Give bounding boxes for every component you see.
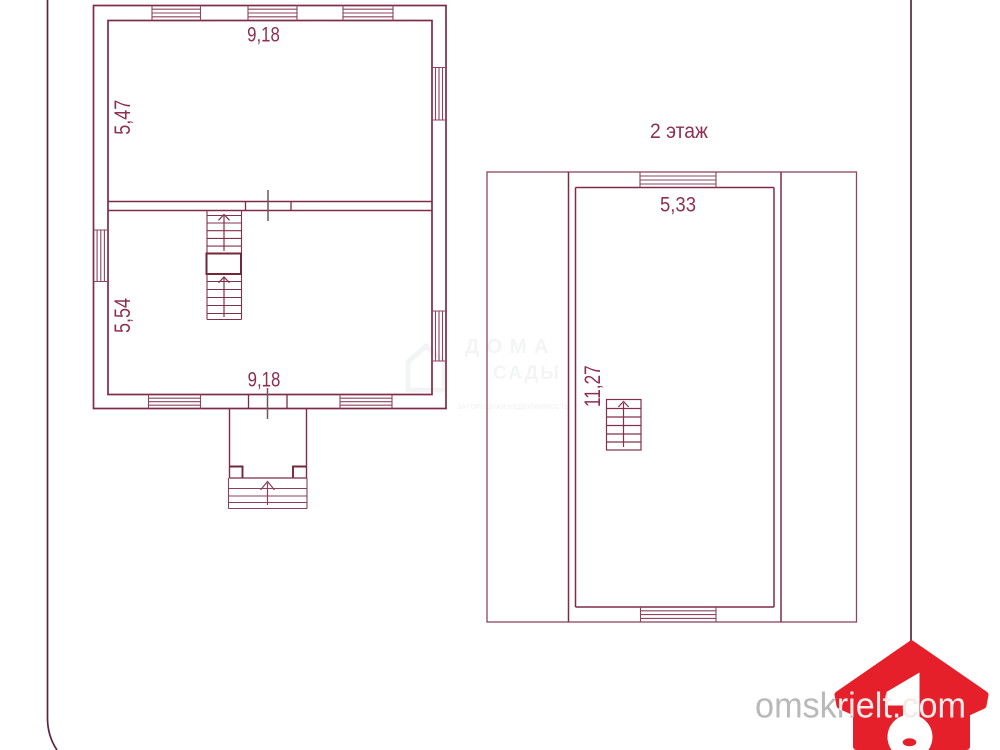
svg-text:5,33: 5,33 bbox=[660, 193, 696, 216]
svg-text:ЗАГОРОДНАЯ НЕДВИЖИМОСТЬ: ЗАГОРОДНАЯ НЕДВИЖИМОСТЬ bbox=[457, 404, 569, 411]
svg-text:11,27: 11,27 bbox=[581, 365, 606, 407]
svg-text:2 этаж: 2 этаж bbox=[650, 119, 708, 143]
svg-text:САДЫ: САДЫ bbox=[493, 363, 561, 384]
svg-text:ДОМА: ДОМА bbox=[465, 336, 556, 358]
svg-text:5,54: 5,54 bbox=[111, 298, 135, 333]
svg-text:9,18: 9,18 bbox=[247, 24, 280, 47]
svg-text:9,18: 9,18 bbox=[248, 369, 281, 392]
svg-text:5,47: 5,47 bbox=[111, 100, 135, 135]
